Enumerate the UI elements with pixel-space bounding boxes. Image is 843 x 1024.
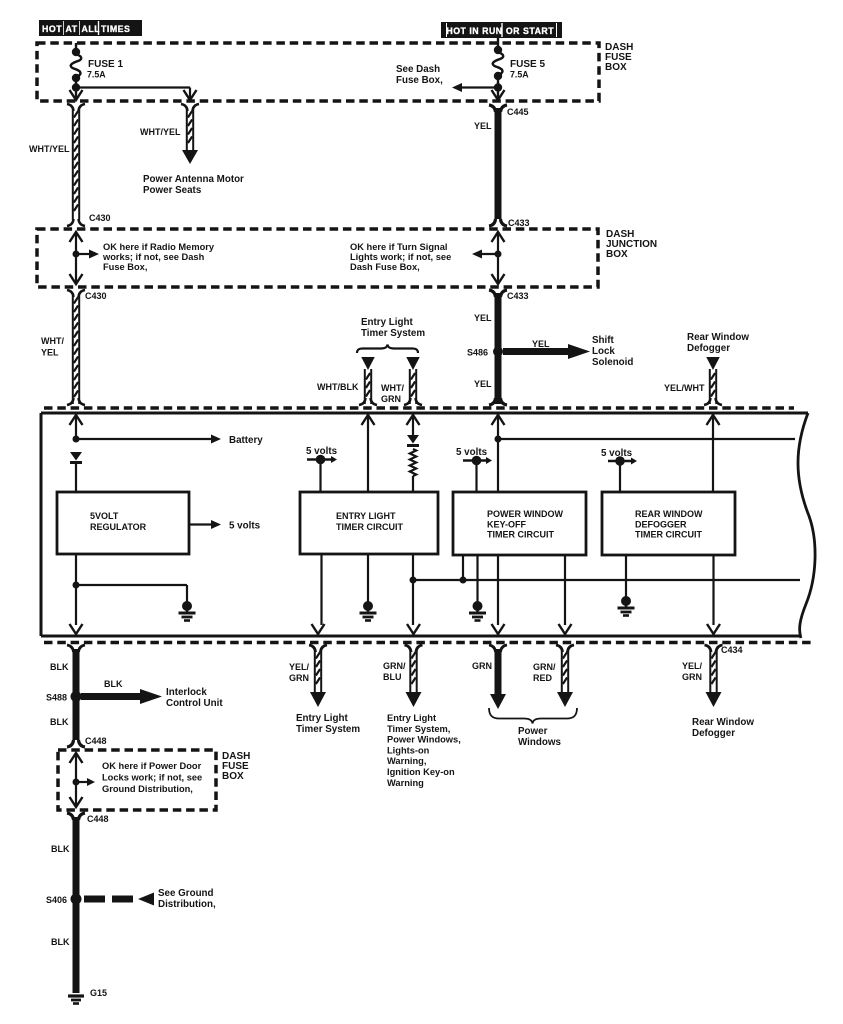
svg-text:Ground Distribution,: Ground Distribution, [102,784,193,794]
svg-text:WHT/YEL: WHT/YEL [29,144,70,154]
svg-text:Power Seats: Power Seats [143,185,202,196]
svg-text:Timer System,: Timer System, [387,724,450,734]
svg-text:Control Unit: Control Unit [166,698,223,709]
svg-text:TIMES: TIMES [101,24,130,34]
svg-text:Entry Light: Entry Light [361,317,413,328]
svg-text:Power Antenna Motor: Power Antenna Motor [143,174,244,185]
svg-text:YEL: YEL [474,379,492,389]
svg-text:works; if not, see Dash: works; if not, see Dash [102,252,205,262]
svg-text:Timer System: Timer System [296,724,360,735]
svg-text:YEL/WHT: YEL/WHT [664,383,705,393]
svg-text:BOX: BOX [606,249,628,260]
svg-text:OR START: OR START [506,26,554,36]
svg-text:BOX: BOX [605,62,627,73]
svg-text:YEL: YEL [474,121,492,131]
svg-text:YEL: YEL [41,348,59,358]
svg-text:RED: RED [533,673,553,683]
svg-text:AT: AT [66,24,78,34]
svg-text:G15: G15 [90,988,107,998]
svg-text:Defogger: Defogger [687,343,730,354]
svg-text:ENTRY LIGHT: ENTRY LIGHT [336,511,396,521]
svg-text:Fuse Box,: Fuse Box, [103,262,147,272]
svg-text:5VOLT: 5VOLT [90,511,119,521]
svg-text:C433: C433 [507,291,529,301]
svg-text:BLU: BLU [383,672,402,682]
svg-text:Battery: Battery [229,435,263,446]
svg-text:GRN: GRN [381,394,401,404]
svg-text:S488: S488 [46,693,67,703]
svg-text:TIMER CIRCUIT: TIMER CIRCUIT [336,522,403,532]
svg-text:Dash Fuse Box,: Dash Fuse Box, [350,262,420,272]
svg-text:7.5A: 7.5A [510,70,529,80]
svg-text:BOX: BOX [222,771,244,782]
svg-text:Lights-on: Lights-on [387,745,430,755]
svg-text:Solenoid: Solenoid [592,357,633,368]
svg-text:TIMER CIRCUIT: TIMER CIRCUIT [635,530,702,540]
svg-text:Rear Window: Rear Window [687,332,749,343]
svg-text:BLK: BLK [50,717,69,727]
svg-text:Rear Window: Rear Window [692,717,754,728]
svg-text:YEL: YEL [474,313,492,323]
svg-text:ALL: ALL [82,24,101,34]
svg-text:GRN: GRN [289,673,309,683]
svg-text:5 volts: 5 volts [229,521,261,532]
svg-text:TIMER CIRCUIT: TIMER CIRCUIT [487,530,554,540]
svg-text:DEFOGGER: DEFOGGER [635,519,687,529]
svg-text:S406: S406 [46,895,67,905]
svg-text:BLK: BLK [51,937,70,947]
svg-text:YEL: YEL [532,339,550,349]
svg-text:WHT/BLK: WHT/BLK [317,382,359,392]
svg-text:Power Windows,: Power Windows, [387,735,461,745]
svg-text:OK here if Turn Signal: OK here if Turn Signal [350,242,447,252]
svg-text:Windows: Windows [518,737,561,748]
svg-text:C448: C448 [87,814,109,824]
svg-text:See Dash: See Dash [396,64,440,75]
svg-text:Lock: Lock [592,346,615,357]
svg-text:Locks work; if not, see: Locks work; if not, see [102,773,202,783]
svg-text:REAR WINDOW: REAR WINDOW [635,509,703,519]
svg-text:C430: C430 [89,213,111,223]
svg-text:C448: C448 [85,736,107,746]
svg-text:GRN: GRN [682,672,702,682]
svg-text:Distribution,: Distribution, [158,899,216,910]
svg-text:KEY-OFF: KEY-OFF [487,519,527,529]
svg-text:5 volts: 5 volts [456,447,488,458]
svg-text:REGULATOR: REGULATOR [90,522,147,532]
svg-text:WHT/YEL: WHT/YEL [140,127,181,137]
svg-text:S486: S486 [467,348,488,358]
svg-text:Warning,: Warning, [387,756,426,766]
svg-text:OK here if Power Door: OK here if Power Door [102,761,202,771]
svg-text:BLK: BLK [50,662,69,672]
svg-text:GRN: GRN [472,661,492,671]
svg-text:Entry Light: Entry Light [387,713,436,723]
svg-text:Warning: Warning [387,778,424,788]
svg-text:C445: C445 [507,107,529,117]
svg-text:GRN/: GRN/ [383,661,406,671]
svg-text:C430: C430 [85,291,107,301]
svg-text:FUSE 5: FUSE 5 [510,59,545,70]
svg-text:BLK: BLK [104,679,123,689]
svg-text:Entry Light: Entry Light [296,713,348,724]
svg-text:See Ground: See Ground [158,888,214,899]
svg-text:OK here if Radio Memory: OK here if Radio Memory [103,242,215,252]
svg-text:Ignition Key-on: Ignition Key-on [387,767,455,777]
svg-text:YEL/: YEL/ [289,662,310,672]
svg-text:GRN/: GRN/ [533,662,556,672]
svg-text:BLK: BLK [51,844,70,854]
svg-text:C433: C433 [508,218,530,228]
svg-text:C434: C434 [721,645,743,655]
svg-text:Defogger: Defogger [692,728,735,739]
svg-text:WHT/: WHT/ [41,336,64,346]
svg-text:FUSE 1: FUSE 1 [88,59,123,70]
svg-text:Lights work; if not, see: Lights work; if not, see [350,252,451,262]
svg-text:HOT IN RUN: HOT IN RUN [446,26,502,36]
svg-text:7.5A: 7.5A [87,70,106,80]
svg-text:YEL/: YEL/ [682,661,703,671]
svg-text:Power: Power [518,726,548,737]
svg-text:WHT/: WHT/ [381,383,404,393]
svg-text:POWER WINDOW: POWER WINDOW [487,509,563,519]
svg-text:Fuse Box,: Fuse Box, [396,75,443,86]
svg-text:Timer System: Timer System [361,328,425,339]
svg-text:Interlock: Interlock [166,687,207,698]
svg-text:HOT: HOT [42,24,62,34]
svg-text:Shift: Shift [592,335,615,346]
svg-text:5 volts: 5 volts [601,448,633,459]
